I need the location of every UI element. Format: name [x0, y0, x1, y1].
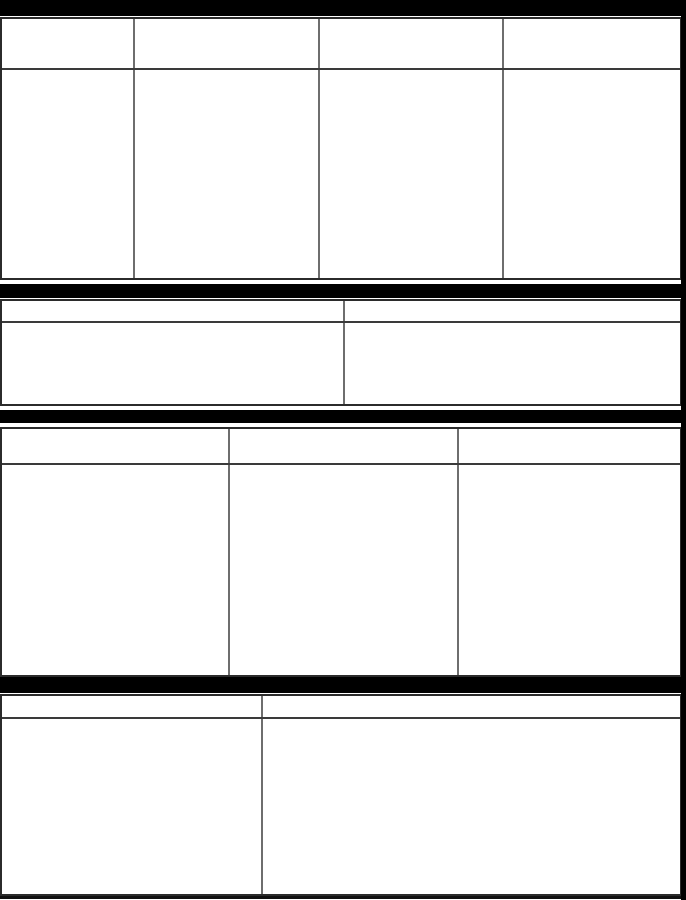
- table1-body-cell-3: [320, 70, 504, 278]
- document-page: [0, 0, 686, 900]
- section-bar-3: [0, 410, 686, 423]
- table3-header-cell-3: [459, 429, 680, 463]
- table1-header-cell-4: [504, 19, 680, 68]
- table4-body-cell-1: [2, 719, 263, 894]
- table3-body-cell-2: [230, 465, 459, 675]
- table1-body-cell-4: [504, 70, 680, 278]
- page-right-edge-band: [681, 0, 686, 900]
- table1-header-row: [2, 19, 680, 70]
- table-2: [0, 299, 682, 406]
- table2-header-cell-1: [2, 301, 345, 321]
- table3-header-row: [2, 429, 680, 465]
- table4-header-row: [2, 696, 680, 719]
- section-bar-4: [0, 677, 686, 693]
- table2-body-cell-2: [345, 323, 680, 404]
- section-bar-2: [0, 284, 686, 298]
- table2-body-cell-1: [2, 323, 345, 404]
- table-3: [0, 427, 682, 677]
- table1-header-cell-3: [320, 19, 504, 68]
- table2-header-cell-2: [345, 301, 680, 321]
- table1-header-cell-1: [2, 19, 135, 68]
- table3-header-cell-2: [230, 429, 459, 463]
- top-section-bar: [0, 0, 686, 16]
- table1-header-cell-2: [135, 19, 320, 68]
- table4-header-cell-1: [2, 696, 263, 717]
- table3-body-row: [2, 465, 680, 675]
- table-4: [0, 694, 682, 896]
- table-1: [0, 17, 682, 280]
- table1-body-cell-2: [135, 70, 320, 278]
- table4-body-row: [2, 719, 680, 894]
- table3-body-cell-3: [459, 465, 680, 675]
- page-bottom-rule: [0, 896, 686, 899]
- table1-body-cell-1: [2, 70, 135, 278]
- table2-header-row: [2, 301, 680, 323]
- table4-header-cell-2: [263, 696, 680, 717]
- table4-body-cell-2: [263, 719, 680, 894]
- table3-header-cell-1: [2, 429, 230, 463]
- table1-body-row: [2, 70, 680, 278]
- table3-body-cell-1: [2, 465, 230, 675]
- table2-body-row: [2, 323, 680, 404]
